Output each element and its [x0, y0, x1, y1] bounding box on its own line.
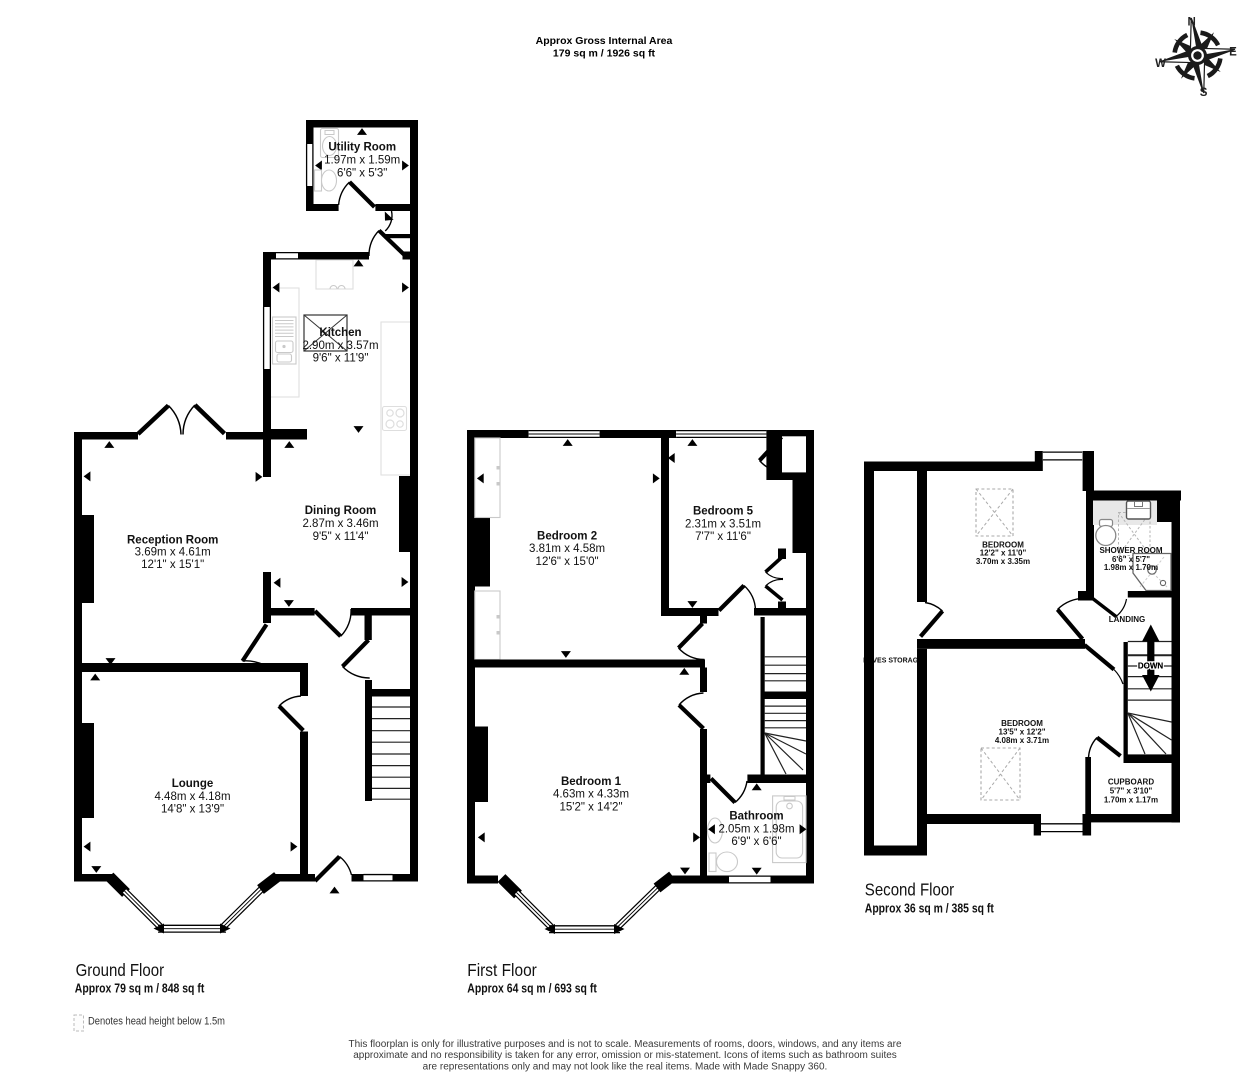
svg-text:4.63m x 4.33m: 4.63m x 4.33m [553, 789, 629, 801]
svg-text:First Floor: First Floor [467, 960, 537, 980]
svg-text:are representations only and m: are representations only and may not loo… [423, 1061, 828, 1072]
svg-text:3.69m x 4.61m: 3.69m x 4.61m [135, 547, 211, 559]
svg-text:6'6" x 5'3": 6'6" x 5'3" [337, 167, 387, 179]
svg-text:W: W [1155, 58, 1166, 70]
svg-text:15'2" x 14'2": 15'2" x 14'2" [559, 801, 622, 813]
svg-text:Denotes head height below 1.5m: Denotes head height below 1.5m [88, 1016, 225, 1028]
svg-text:2.31m x 3.51m: 2.31m x 3.51m [685, 518, 761, 530]
svg-text:Bathroom: Bathroom [729, 811, 783, 823]
svg-text:Reception Room: Reception Room [127, 534, 218, 546]
svg-text:4.48m x 4.18m: 4.48m x 4.18m [154, 791, 230, 803]
svg-text:LANDING: LANDING [1109, 615, 1145, 624]
svg-text:Second Floor: Second Floor [865, 879, 955, 899]
svg-text:2.90m x 3.57m: 2.90m x 3.57m [302, 340, 378, 352]
svg-text:Approx Gross Internal Area: Approx Gross Internal Area [536, 35, 673, 47]
svg-text:4.08m x 3.71m: 4.08m x 3.71m [995, 736, 1049, 745]
svg-text:S: S [1200, 87, 1208, 99]
svg-text:SHOWER ROOM: SHOWER ROOM [1099, 546, 1162, 555]
svg-text:Bedroom 1: Bedroom 1 [561, 776, 622, 788]
svg-text:179 sq m / 1926 sq ft: 179 sq m / 1926 sq ft [553, 48, 656, 60]
svg-text:9'6" x 11'9": 9'6" x 11'9" [313, 353, 369, 365]
svg-text:DOWN: DOWN [1138, 662, 1164, 671]
svg-text:Bedroom 5: Bedroom 5 [693, 506, 754, 518]
svg-text:1.70m x 1.17m: 1.70m x 1.17m [1104, 796, 1158, 805]
svg-text:1.97m x 1.59m: 1.97m x 1.59m [324, 155, 400, 167]
svg-text:2.05m x 1.98m: 2.05m x 1.98m [718, 823, 794, 835]
svg-text:Ground Floor: Ground Floor [76, 960, 165, 980]
svg-text:12'1" x 15'1": 12'1" x 15'1" [141, 559, 204, 571]
svg-text:N: N [1188, 17, 1196, 29]
svg-text:Lounge: Lounge [172, 778, 214, 790]
svg-text:12'6" x 15'0": 12'6" x 15'0" [536, 556, 599, 568]
svg-text:6'9" x 6'6": 6'9" x 6'6" [731, 836, 781, 848]
svg-text:3.81m x 4.58m: 3.81m x 4.58m [529, 543, 605, 555]
svg-text:Utility Room: Utility Room [328, 142, 396, 154]
svg-text:approximate and no responsibil: approximate and no responsibility is tak… [353, 1050, 897, 1061]
svg-text:Approx 64 sq m / 693 sq ft: Approx 64 sq m / 693 sq ft [467, 981, 597, 996]
svg-text:1.98m x 1.70m: 1.98m x 1.70m [1104, 563, 1158, 572]
svg-text:E: E [1229, 47, 1237, 59]
svg-text:3.70m x 3.35m: 3.70m x 3.35m [976, 557, 1030, 566]
svg-text:5'7" x 3'10": 5'7" x 3'10" [1110, 787, 1153, 796]
svg-text:This floorplan is only for ill: This floorplan is only for illustrative … [348, 1039, 901, 1050]
svg-text:Approx 79 sq m / 848 sq ft: Approx 79 sq m / 848 sq ft [75, 981, 205, 996]
svg-text:9'5" x 11'4": 9'5" x 11'4" [313, 531, 369, 543]
svg-text:Bedroom 2: Bedroom 2 [537, 530, 597, 542]
svg-text:Approx 36 sq m / 385 sq ft: Approx 36 sq m / 385 sq ft [865, 901, 995, 916]
svg-text:Dining Room: Dining Room [305, 505, 377, 517]
svg-text:CUPBOARD: CUPBOARD [1108, 778, 1154, 787]
svg-text:14'8" x 13'9": 14'8" x 13'9" [161, 804, 224, 816]
svg-text:7'7" x 11'6": 7'7" x 11'6" [695, 531, 751, 543]
svg-text:2.87m x 3.46m: 2.87m x 3.46m [302, 518, 378, 530]
svg-text:Kitchen: Kitchen [319, 327, 361, 339]
